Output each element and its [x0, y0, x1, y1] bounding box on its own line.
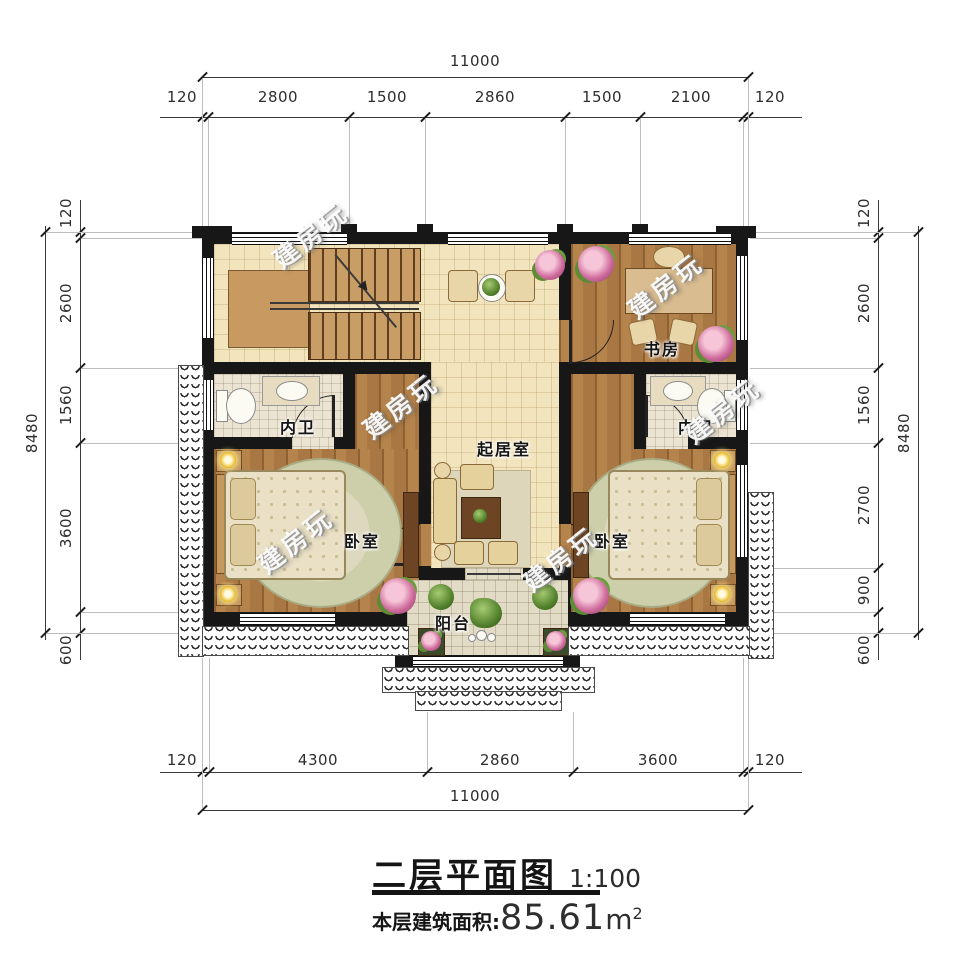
dim-bottom-total: 11000: [450, 787, 500, 805]
window-bedroom-right: [736, 465, 748, 557]
title-underline: [372, 890, 600, 895]
extension-line: [772, 633, 916, 634]
tv-cabinet: [403, 492, 419, 578]
extension-line: [750, 443, 876, 444]
armchair: [488, 541, 518, 565]
sink-basin: [276, 381, 308, 401]
bedside-lamp: [714, 452, 730, 468]
extension-line: [750, 238, 876, 239]
dimension-line: [202, 77, 748, 78]
extension-line: [427, 712, 428, 770]
room-label-study: 书房: [644, 336, 680, 360]
wall-pier: [417, 224, 433, 232]
dim-left-total: 8480: [23, 413, 41, 453]
dim-left-seg1: 2600: [57, 283, 75, 323]
stair-flight-lower: [308, 312, 421, 360]
extension-line: [743, 119, 744, 227]
room-label-balcony: 阳台: [435, 610, 471, 634]
wall-pier: [632, 224, 648, 232]
balcony-railing: [413, 656, 563, 666]
floor-vestibule-right: [571, 374, 634, 449]
side-table: [434, 544, 451, 561]
dim-top-seg2: 1500: [367, 88, 407, 106]
extension-line: [202, 79, 203, 229]
extension-line: [47, 633, 178, 634]
extension-line: [748, 79, 749, 229]
roof-apron-balcony: [382, 667, 595, 693]
dimension-line: [80, 200, 81, 660]
side-table: [434, 462, 451, 479]
pebble: [487, 633, 496, 642]
stair-flight-upper: [308, 248, 421, 302]
room-label-bath-left: 内卫: [280, 414, 316, 438]
dim-bottom-seg2: 2860: [480, 751, 520, 769]
dim-bottom-seg4: 120: [755, 751, 785, 769]
dim-bottom-seg3: 3600: [638, 751, 678, 769]
roof-apron-bottom-left: [202, 626, 409, 656]
roof-apron-bottom-right: [568, 626, 750, 656]
armchair: [460, 464, 494, 490]
pillow: [230, 524, 256, 566]
door-opening-bedroom-left: [419, 524, 431, 566]
table-plant: [473, 509, 487, 523]
dim-right-seg5: 600: [855, 635, 873, 665]
extension-line: [743, 658, 744, 770]
flower-pot: [578, 246, 614, 282]
sink-basin: [663, 381, 693, 401]
roof-apron-left: [178, 365, 204, 657]
pebble: [468, 634, 476, 642]
dim-left-seg4: 600: [57, 635, 75, 665]
balcony-centerpiece: [470, 598, 502, 628]
dim-top-seg6: 120: [755, 88, 785, 106]
dim-top-seg1: 2800: [258, 88, 298, 106]
door-leaf-study: [569, 320, 572, 364]
dim-bottom-seg0: 120: [167, 751, 197, 769]
potted-plant: [482, 278, 500, 296]
dimension-line: [45, 226, 46, 640]
area-unit: m: [605, 903, 632, 936]
window-study-right: [736, 256, 748, 340]
dim-top-total: 11000: [450, 52, 500, 70]
pillow: [696, 478, 722, 520]
dimension-line: [160, 772, 802, 773]
extension-line: [82, 238, 202, 239]
bedside-lamp: [714, 586, 730, 602]
dim-right-total: 8480: [895, 413, 913, 453]
pillow: [696, 524, 722, 566]
stair-rail: [270, 302, 419, 304]
extension-line: [47, 232, 202, 233]
dim-bottom-seg1: 4300: [298, 751, 338, 769]
flower-pot: [380, 578, 416, 614]
extension-line: [774, 612, 876, 613]
sofa-long: [433, 478, 457, 544]
room-label-living: 起居室: [477, 436, 531, 460]
bedside-lamp: [220, 586, 236, 602]
extension-line: [750, 368, 876, 369]
roof-apron-balcony-lower: [415, 691, 562, 711]
extension-line: [748, 658, 749, 808]
armchair: [505, 270, 535, 302]
dimension-line: [878, 200, 879, 660]
extension-line: [774, 568, 876, 569]
dim-right-seg0: 120: [855, 198, 873, 228]
wall-pier: [192, 226, 232, 238]
balcony-door-line: [467, 573, 521, 575]
dim-left-seg2: 1560: [57, 385, 75, 425]
pillow: [230, 478, 256, 520]
extension-line: [565, 119, 566, 227]
wall-pier: [557, 224, 573, 232]
dim-right-seg3: 2700: [855, 485, 873, 525]
dim-right-seg1: 2600: [855, 283, 873, 323]
toilet-bowl: [226, 388, 256, 424]
balcony-bush: [428, 584, 454, 610]
dim-top-seg4: 1500: [582, 88, 622, 106]
extension-line: [750, 232, 916, 233]
extension-line: [425, 119, 426, 227]
window-bedroom-right-bottom: [630, 613, 725, 625]
bedside-lamp: [220, 452, 236, 468]
floor-plan-canvas: 11000 120 2800 1500 2860 1500 2100 120 1…: [0, 0, 972, 979]
room-label-bedroom-left: 卧室: [344, 528, 380, 552]
stair-rail: [270, 308, 419, 310]
planter-flowers: [421, 631, 441, 651]
window-bedroom-left-bottom: [240, 613, 335, 625]
flower-pot: [698, 326, 734, 362]
dimension-line: [918, 226, 919, 640]
dim-top-seg3: 2860: [475, 88, 515, 106]
dim-right-seg4: 900: [855, 575, 873, 605]
dimension-line: [160, 117, 802, 118]
area-label: 本层建筑面积:: [372, 910, 500, 934]
planter-flowers: [546, 631, 566, 651]
door-opening-bath-left: [292, 437, 334, 449]
extension-line: [573, 712, 574, 770]
extension-line: [640, 119, 641, 227]
door-leaf-bath-left: [332, 395, 335, 437]
extension-line: [82, 368, 178, 369]
roof-apron-right: [748, 492, 774, 659]
dimension-line: [202, 810, 748, 811]
dim-left-seg0: 120: [57, 198, 75, 228]
dim-right-seg2: 1560: [855, 385, 873, 425]
area-value: 85.61: [500, 898, 605, 938]
door-leaf-bath-right: [645, 395, 648, 437]
door-opening-bath-right: [646, 437, 688, 449]
plan-scale: 1:100: [569, 864, 641, 893]
dim-top-seg5: 2100: [671, 88, 711, 106]
flower-pot: [573, 578, 609, 614]
extension-line: [82, 612, 178, 613]
pebble: [476, 630, 487, 641]
area-superscript: 2: [632, 904, 642, 923]
extension-line: [208, 119, 209, 227]
window-living-top: [448, 233, 548, 245]
dim-left-seg3: 3600: [57, 508, 75, 548]
flower-pot: [535, 250, 565, 280]
armchair: [448, 270, 478, 302]
window-stair-left: [202, 258, 214, 338]
window-study: [629, 233, 731, 245]
extension-line: [349, 119, 350, 227]
armchair: [454, 541, 484, 565]
extension-line: [209, 658, 210, 770]
extension-line: [82, 443, 178, 444]
plan-area-row: 本层建筑面积:85.61m2: [372, 898, 643, 938]
dim-top-seg0: 120: [167, 88, 197, 106]
extension-line: [202, 658, 203, 808]
